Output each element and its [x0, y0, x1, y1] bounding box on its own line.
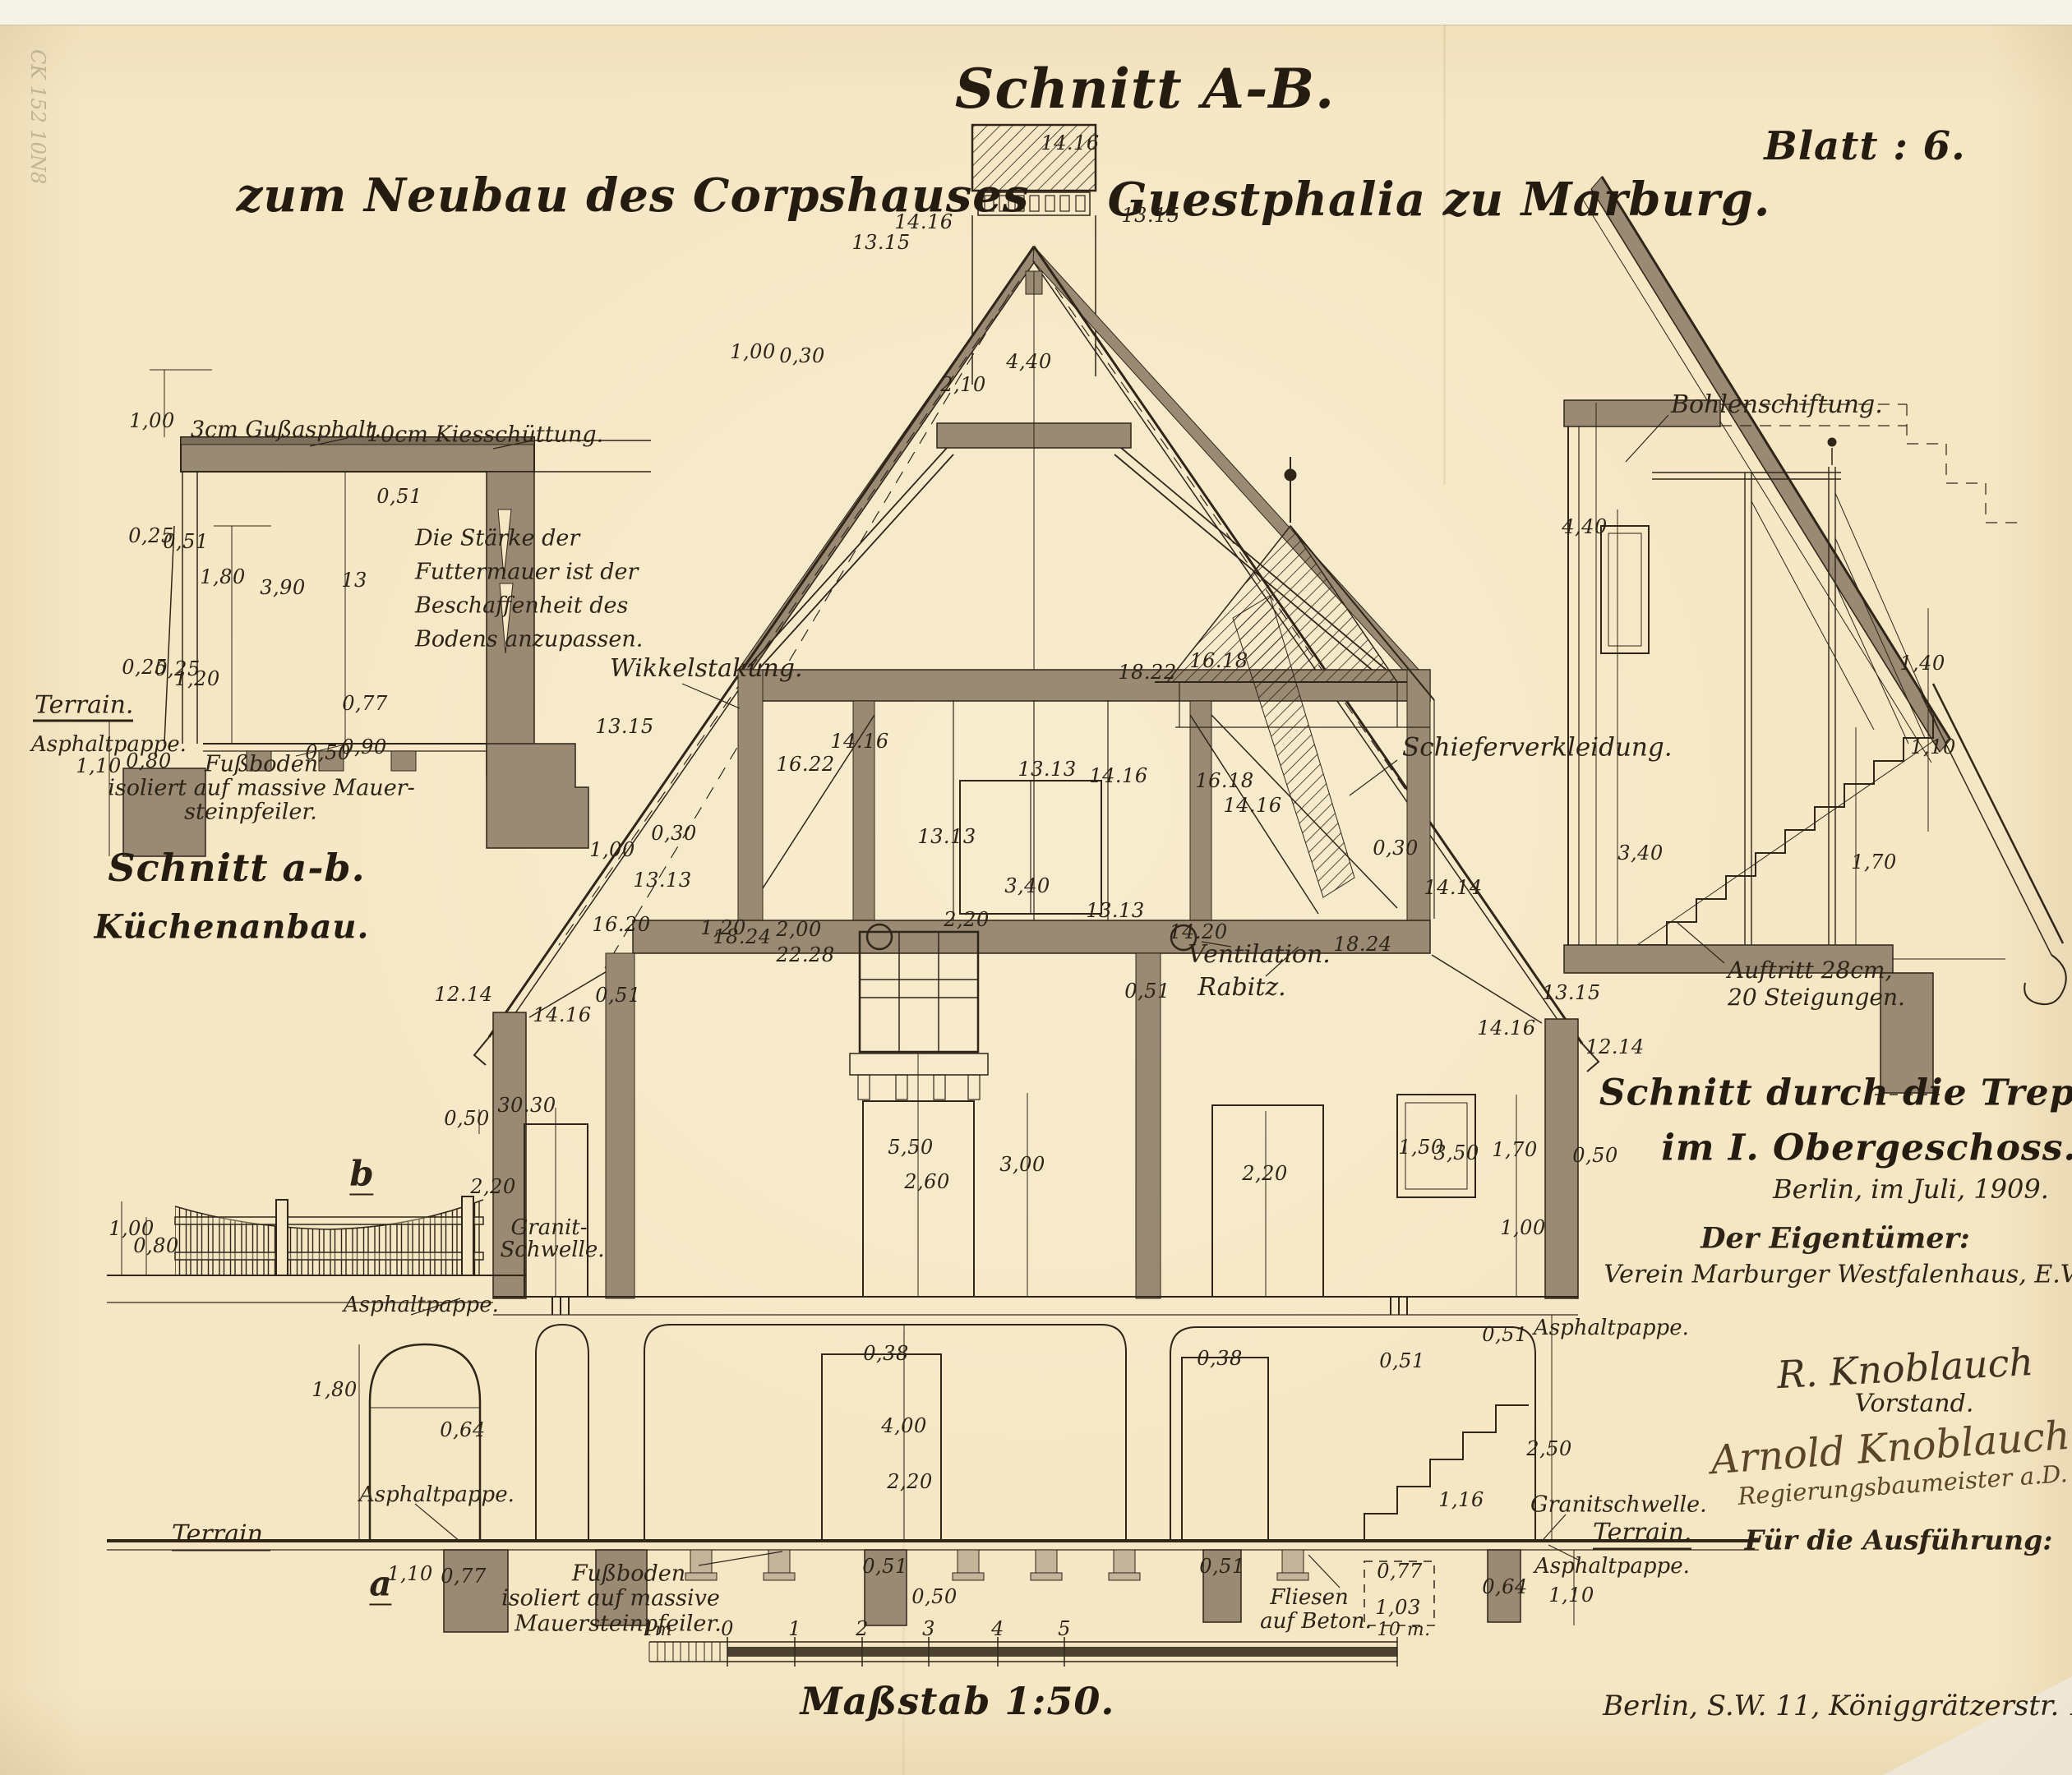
kitchen-section-title: Schnitt a-b. [108, 846, 365, 890]
dim-13-15-r: 13.15 [1121, 205, 1179, 225]
dim-kitchen-1-10: 1,10 [76, 756, 121, 776]
note-futtermauer-3: Beschaffenheit des [415, 595, 628, 617]
note-fussboden-k3: steinpfeiler. [184, 801, 317, 823]
tick-3: 3 [922, 1619, 935, 1639]
dim-1-40-stair: 1,40 [1899, 653, 1945, 673]
dim-1-10-stair: 1,10 [1910, 737, 1955, 757]
dim-0-64-r: 0,64 [1482, 1577, 1527, 1597]
note-ventilation: Ventilation. [1188, 943, 1331, 967]
note-asphaltpappe-arch-bot: Asphaltpappe. [359, 1484, 515, 1505]
dim-kitchen-0-80: 0,80 [126, 751, 171, 771]
dim-peak-14-16: 14.16 [1041, 133, 1099, 153]
dim-4-40-stair: 4,40 [1562, 517, 1607, 537]
dim-1-10-r: 1,10 [1548, 1585, 1594, 1605]
owner-name: Verein Marburger Westfalenhaus, E.V. [1604, 1261, 2072, 1289]
note-rabitz: Rabitz. [1198, 975, 1285, 1000]
note-fussboden-3: Mauersteinpfeiler. [515, 1613, 722, 1635]
dim-2-60: 2,60 [904, 1172, 949, 1192]
dim-0-50-r: 0,50 [1572, 1146, 1617, 1165]
dim-kitchen-1-80: 1,80 [200, 567, 245, 587]
dim-kitchen-1-00: 1,00 [129, 411, 174, 431]
note-asphaltpappe-arch-top: Asphaltpappe. [344, 1294, 499, 1316]
dim-13-13-c: 13.13 [917, 827, 976, 846]
dim-1-70-stair: 1,70 [1851, 852, 1896, 872]
dim-1-10-l: 1,10 [387, 1564, 432, 1584]
dim-0-51-wallB: 0,51 [1124, 981, 1170, 1001]
dim-3-40-stair: 3,40 [1617, 843, 1663, 863]
dim-1-00-l: 1,00 [589, 840, 635, 860]
dim-0-51-b: 0,51 [1379, 1351, 1424, 1371]
dim-16-18-a: 16.18 [1189, 651, 1248, 671]
note-fliesen-1: Fliesen [1270, 1587, 1349, 1608]
note-bohlenschiftung: Bohlenschiftung. [1671, 393, 1883, 417]
dim-0-51-rwall: 0,51 [1482, 1325, 1527, 1344]
note-auftritt-2: 20 Steigungen. [1728, 986, 1905, 1009]
note-futtermauer-1: Die Stärke der [415, 528, 579, 550]
dim-0-51-pier-b: 0,51 [1199, 1556, 1244, 1576]
dim-2-50: 2,50 [1526, 1439, 1571, 1459]
label-b: b [349, 1157, 373, 1196]
subtitle-right: Guestphalia zu Marburg. [1108, 173, 1771, 227]
tick-0: 0 [721, 1619, 734, 1639]
dim-4-40-attic: 4,40 [1006, 352, 1051, 371]
page-title: Schnitt A-B. [955, 57, 1335, 121]
dim-kitchen-3-90: 3,90 [260, 578, 305, 597]
dim-14-20: 14.20 [1169, 922, 1227, 942]
note-gussasphalt: 3cm Gußasphalt. [191, 419, 381, 441]
note-fussboden-k1: Fußboden [205, 754, 318, 776]
dim-2-10-attic: 2,10 [940, 375, 985, 394]
dim-13-15-l: 13.15 [851, 233, 910, 252]
note-terrain-kitchen: Terrain. [35, 694, 133, 722]
dim-13-15-eaves: 13.15 [595, 717, 653, 736]
dim-1-03: 1,03 [1375, 1597, 1420, 1617]
paper-sheet: Schnitt A-B. zum Neubau des Corpshauses … [0, 0, 2072, 1775]
note-futtermauer-4: Bodens anzupassen. [415, 629, 643, 651]
note-granitschwelle-r: Granitschwelle. [1530, 1494, 1707, 1516]
note-granitschwelle-l2: Schwelle. [500, 1239, 604, 1261]
dim-13-13-d: 13.13 [1086, 901, 1144, 920]
dim-14-16-d: 14.16 [1089, 766, 1147, 786]
note-kiesschuettung: 10cm Kiesschüttung. [367, 424, 603, 446]
note-auftritt-1: Auftritt 28cm, [1728, 959, 1892, 982]
dim-2-20-attic: 2,20 [944, 910, 989, 929]
dim-14-16-c: 14.16 [830, 731, 888, 751]
dim-3-00: 3,00 [999, 1155, 1045, 1174]
tick-2: 2 [856, 1619, 869, 1639]
dim-13-15-eaves-r: 13.15 [1542, 983, 1600, 1003]
execution-heading: Für die Ausführung: [1745, 1524, 2053, 1556]
dim-1-00-r: 1,00 [1500, 1218, 1545, 1238]
dim-1-16: 1,16 [1438, 1490, 1484, 1510]
stair-section-title-1: Schnitt durch die Treppe [1599, 1072, 2072, 1114]
note-fussboden-k2: isoliert auf massive Mauer- [108, 777, 414, 800]
dim-3-40-attic: 3,40 [1004, 876, 1050, 896]
note-asphaltpappe-r-top: Asphaltpappe. [1534, 1317, 1689, 1339]
dim-0-64-l: 0,64 [440, 1420, 485, 1440]
dim-13-13-a: 13.13 [1018, 759, 1076, 779]
sheet-number: Blatt : 6. [1764, 123, 1966, 169]
archive-pencil-note: CK 152 10N8 [26, 49, 49, 184]
dim-0-77-l: 0,77 [441, 1566, 486, 1586]
date-place: Berlin, im Juli, 1909. [1773, 1173, 2049, 1205]
dim-1-00-attic: 1,00 [730, 342, 775, 362]
signature-role-vorstand: Vorstand. [1855, 1390, 1974, 1418]
dim-0-30-l: 0,30 [651, 823, 696, 843]
dim-22-28: 22.28 [776, 945, 834, 965]
dim-0-50-pier: 0,50 [911, 1587, 957, 1607]
dim-kitchen-0-51: 0,51 [163, 532, 208, 551]
dim-0-51-pier-a: 0,51 [862, 1556, 907, 1576]
dim-14-14: 14.14 [1424, 878, 1482, 897]
dim-2-20-door-r: 2,20 [1242, 1164, 1287, 1183]
dim-0-50-l: 0,50 [444, 1109, 489, 1128]
stair-section-title-2: im I. Obergeschoss. [1661, 1127, 2072, 1169]
dim-kitchen-0-51-top: 0,51 [376, 486, 422, 506]
dim-14-16-l: 14.16 [894, 212, 953, 232]
note-fussboden-2: isoliert auf massive [501, 1588, 720, 1610]
dim-0-51-wallA: 0,51 [595, 985, 640, 1005]
dim-fence-0-80: 0,80 [133, 1236, 178, 1256]
dim-5-50: 5,50 [888, 1137, 933, 1157]
owner-heading: Der Eigentümer: [1701, 1222, 1970, 1256]
dim-2-20-cellar: 2,20 [887, 1472, 932, 1491]
dim-1-80-arch: 1,80 [311, 1380, 357, 1399]
dim-0-30-r: 0,30 [1373, 838, 1418, 858]
dim-1-70-r: 1,70 [1492, 1140, 1537, 1160]
dim-18-22: 18.22 [1118, 662, 1176, 682]
scale-label: Maßstab 1:50. [801, 1679, 1115, 1723]
dim-kitchen-1-20: 1,20 [174, 669, 219, 689]
dim-12-14-l: 12.14 [434, 984, 492, 1004]
dim-2-00: 2,00 [776, 920, 821, 939]
address-line: Berlin, S.W. 11, Königgrätzerstr. 100. [1603, 1690, 2072, 1722]
scale-bar [649, 1637, 1397, 1667]
dim-16-20: 16.20 [592, 915, 650, 934]
note-wikkelstakung: Wikkelstakung. [610, 657, 803, 681]
dim-0-30-attic: 0,30 [779, 346, 824, 366]
note-asphaltpappe-r-bot: Asphaltpappe. [1534, 1556, 1690, 1577]
dim-18-24-l: 18.24 [713, 927, 771, 947]
tick-10m: 10 m. [1377, 1621, 1430, 1639]
dim-4-00: 4,00 [881, 1416, 926, 1436]
dim-2-20-door-l: 2,20 [470, 1177, 515, 1196]
note-terrain-l: Terrain. [172, 1523, 270, 1551]
kitchen-section-subtitle: Küchenanbau. [95, 908, 370, 947]
note-terrain-r: Terrain. [1593, 1521, 1691, 1550]
dim-13-13-b: 13.13 [633, 870, 691, 890]
note-fliesen-2: auf Beton. [1260, 1611, 1372, 1632]
dim-14-16-e: 14.16 [1223, 795, 1281, 815]
tick-1m: 1m [643, 1621, 672, 1639]
dim-14-16-eaves-l: 14.16 [533, 1005, 591, 1025]
dim-16-22: 16.22 [776, 754, 834, 774]
tick-4: 4 [991, 1619, 1004, 1639]
note-schieferverkleidung: Schieferverkleidung. [1402, 735, 1673, 761]
dim-kitchen-13: 13 [341, 570, 367, 590]
drawing-sheet: { "document": { "title": "Schnitt A-B.",… [0, 0, 2072, 1775]
note-fussboden-1: Fußboden [572, 1563, 685, 1585]
dim-0-38-b: 0,38 [1197, 1349, 1242, 1368]
dim-3-50: 3,50 [1433, 1143, 1479, 1163]
dim-0-77-dash: 0,77 [1377, 1561, 1422, 1581]
dim-16-18-b: 16.18 [1195, 771, 1253, 791]
dim-12-14-r: 12.14 [1585, 1037, 1644, 1057]
note-futtermauer-2: Futtermauer ist der [415, 561, 638, 583]
tick-1: 1 [788, 1619, 801, 1639]
dim-14-16-eaves-r: 14.16 [1477, 1018, 1535, 1038]
dim-0-38-a: 0,38 [863, 1344, 908, 1363]
dim-kitchen-0-77: 0,77 [342, 694, 387, 713]
note-granitschwelle-l1: Granit- [511, 1217, 588, 1238]
dim-18-24-r: 18.24 [1333, 934, 1391, 954]
dim-30-30: 30.30 [497, 1095, 556, 1115]
tick-5: 5 [1058, 1619, 1071, 1639]
